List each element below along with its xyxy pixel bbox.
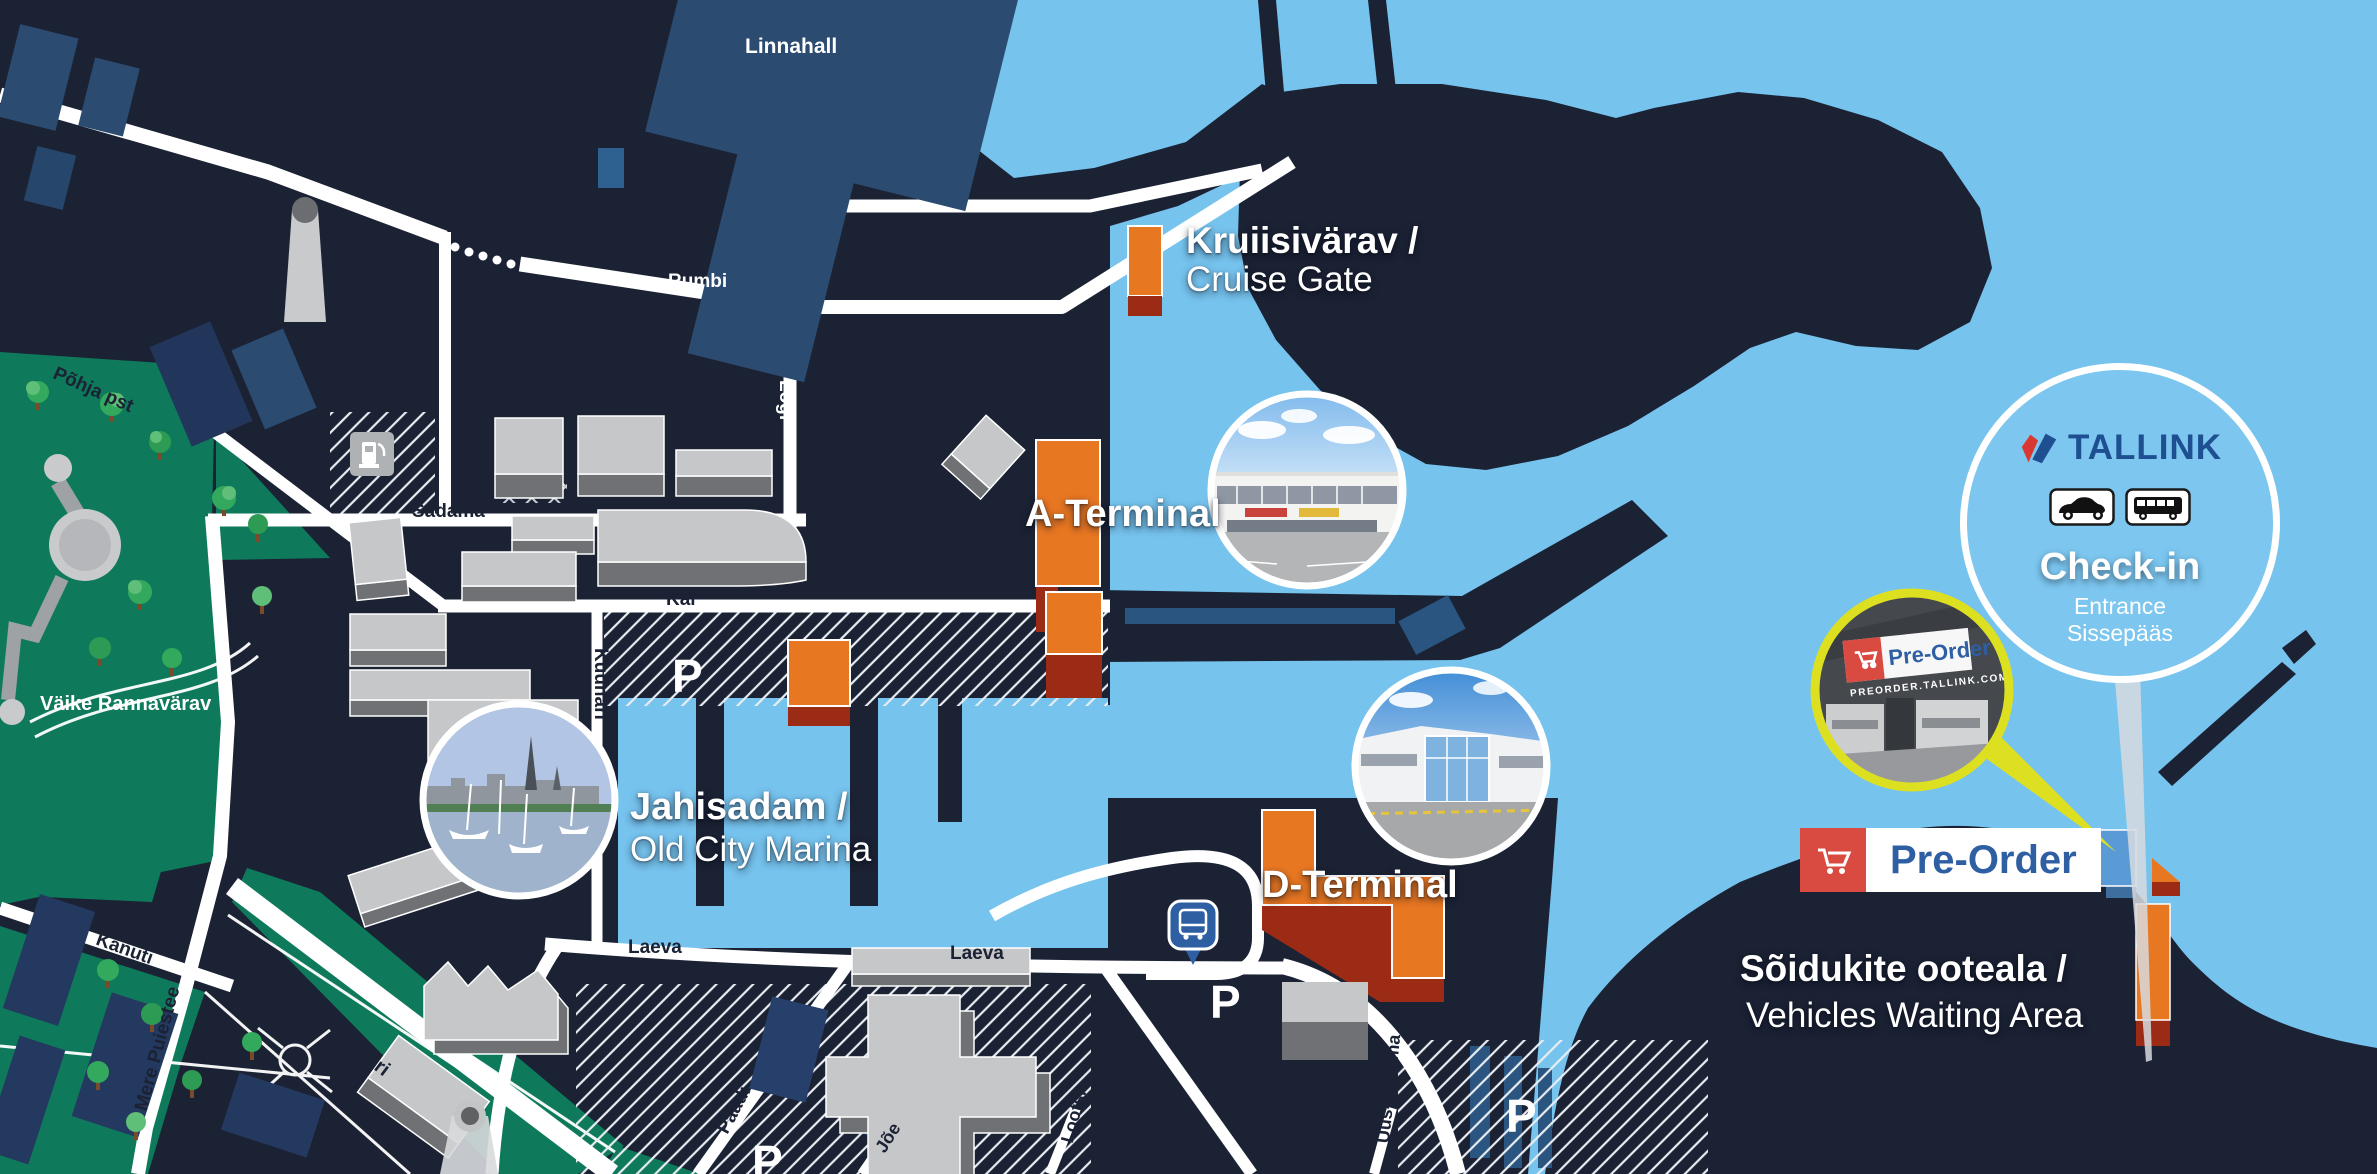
cruise-gate-marker[interactable]: [1128, 226, 1162, 316]
car-sign-icon: [2049, 488, 2115, 526]
marina-photo[interactable]: [419, 700, 619, 900]
street-laeva-west: Laeva: [628, 938, 682, 958]
kai-orange-building: [788, 640, 850, 726]
tallink-brand-text: TALLINK: [2068, 428, 2222, 468]
parking-kai: P: [672, 652, 703, 700]
label-linnahall: Linnahall: [745, 36, 837, 58]
street-kai: Kai: [666, 590, 696, 610]
parking-south: P: [752, 1138, 783, 1174]
street-rumbi: Rumbi: [668, 272, 727, 292]
street-logi: Logi: [775, 380, 795, 420]
street-laeva-east: Laeva: [950, 944, 1004, 964]
label-cruise-gate-en: Cruise Gate: [1186, 262, 1373, 299]
label-waiting-area-en: Vehicles Waiting Area: [1746, 998, 2083, 1035]
tallink-mark-icon: [2018, 430, 2060, 466]
bus-sign-icon: [2125, 488, 2191, 526]
preorder-photo-magnifier[interactable]: Pre-Order PREORDER.TALLINK.COM: [1812, 590, 2012, 790]
label-vaike-rannavarav: Väike Rannavärav: [40, 694, 211, 715]
preorder-badge[interactable]: Pre-Order: [1800, 828, 2101, 892]
label-waiting-area-et: Sõidukite ooteala /: [1740, 950, 2067, 989]
checkin-circle[interactable]: TALLINK Check-in Entrance Sissepääs: [1960, 363, 2280, 683]
a-terminal-photo[interactable]: [1207, 390, 1407, 590]
d-terminal-photo[interactable]: [1351, 666, 1551, 866]
label-d-terminal: D-Terminal: [1262, 866, 1458, 906]
street-kuunari: Kuunari: [590, 648, 610, 720]
fuel-station-icon: [350, 432, 394, 476]
cart-icon: [1800, 828, 1866, 892]
label-marina-en: Old City Marina: [630, 832, 871, 869]
checkin-sissepaas: Sissepääs: [2067, 620, 2173, 647]
tallink-logo: TALLINK: [2018, 428, 2222, 468]
label-cruise-gate-et: Kruiisivärav /: [1186, 222, 1418, 261]
label-a-terminal: A-Terminal: [1025, 495, 1221, 535]
preorder-label: Pre-Order: [1866, 828, 2101, 892]
label-marina-et: Jahisadam /: [630, 788, 848, 828]
parking-d-terminal: P: [1210, 978, 1241, 1026]
checkin-entrance: Entrance: [2074, 593, 2166, 620]
parking-southeast: P: [1506, 1092, 1537, 1140]
checkin-title: Check-in: [2040, 546, 2200, 589]
street-sadama: Sadama: [412, 502, 485, 522]
port-map: Pre-Order PREORDER.TALLINK.COM Linnahall…: [0, 0, 2377, 1174]
